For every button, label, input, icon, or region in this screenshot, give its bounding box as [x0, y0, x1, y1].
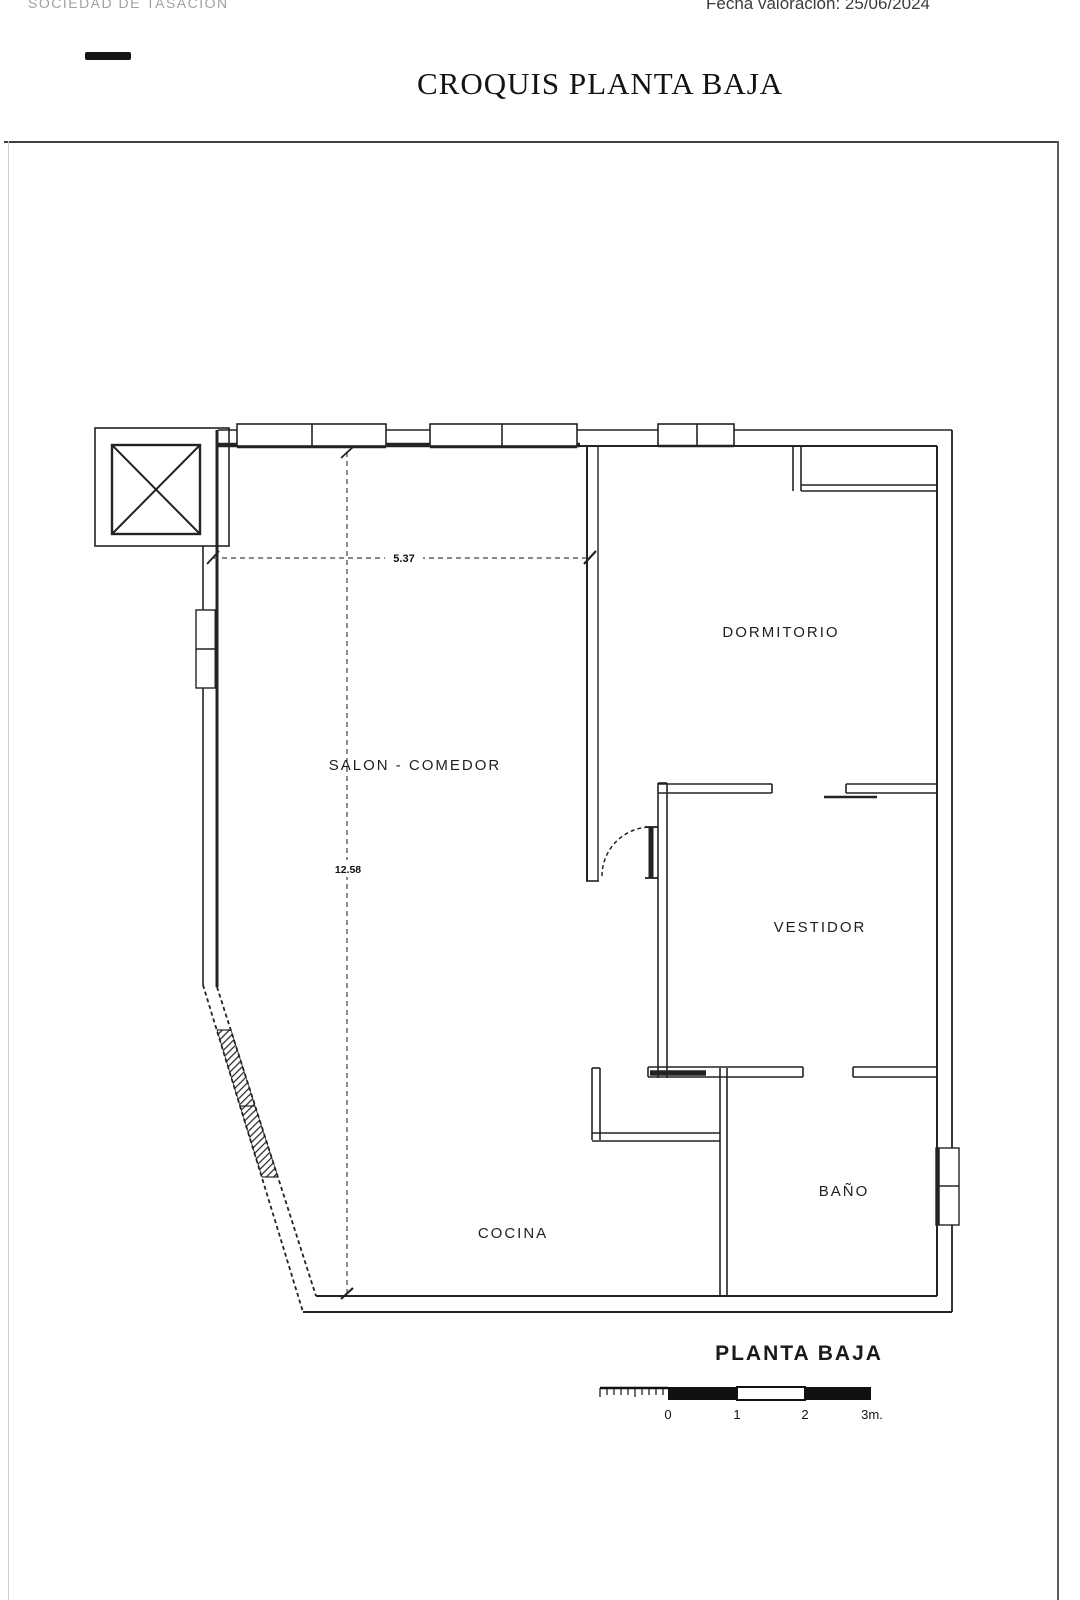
room-label-cocina: COCINA: [478, 1225, 548, 1242]
window-icon: [430, 424, 577, 447]
elevator-shaft-symbol: [95, 428, 229, 546]
window-icon: [237, 424, 386, 447]
left-wall-window-icon: [196, 610, 217, 688]
door-swing-icon: [602, 827, 658, 878]
document-page: SOCIEDAD DE TASACIÓN Fecha valoración: 2…: [0, 0, 1080, 1600]
diagonal-facade-wall: [203, 985, 316, 1312]
room-label-salon-comedor: SALON - COMEDOR: [329, 757, 502, 774]
scale-tick-0: 0: [664, 1407, 671, 1422]
plan-caption: PLANTA BAJA: [715, 1342, 883, 1365]
top-facade-windows: [237, 424, 734, 447]
exterior-walls: [203, 430, 952, 1312]
dimension-width-value: 5.37: [393, 553, 414, 565]
scale-bar: [600, 1387, 871, 1400]
dimension-height-value: 12.58: [335, 864, 361, 876]
scale-tick-2: 2: [801, 1407, 808, 1422]
interior-walls: [586, 446, 937, 1296]
room-label-bano: BAÑO: [819, 1183, 870, 1200]
bathroom-window-icon: [936, 1148, 959, 1225]
floor-plan-drawing: 5.37 12.58 SALON - COMEDOR DORMITORIO VE…: [0, 0, 1080, 1600]
room-label-vestidor: VESTIDOR: [774, 919, 867, 936]
scale-tick-3: 3m.: [861, 1407, 883, 1422]
room-label-dormitorio: DORMITORIO: [722, 624, 839, 641]
scale-tick-1: 1: [733, 1407, 740, 1422]
window-icon: [658, 424, 734, 446]
